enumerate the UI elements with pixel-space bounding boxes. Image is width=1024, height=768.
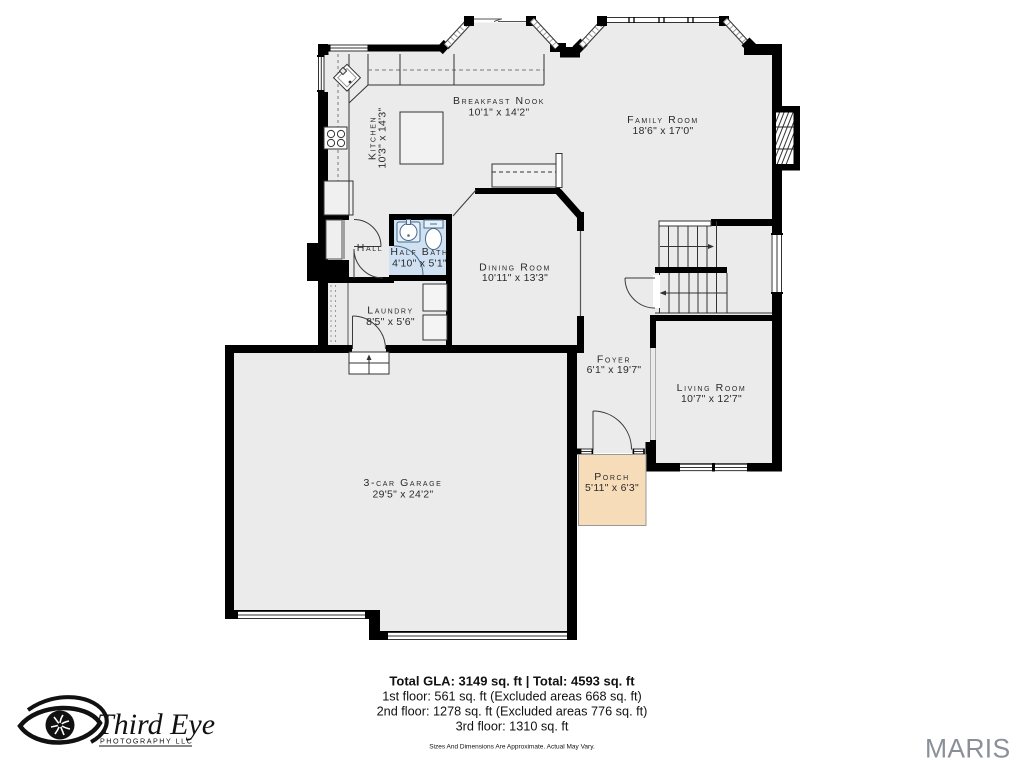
svg-text:3-car Garage: 3-car Garage <box>364 477 443 489</box>
svg-text:Porch: Porch <box>594 471 630 483</box>
svg-text:MARIS: MARIS <box>925 734 1010 764</box>
svg-text:18'6" x 17'0": 18'6" x 17'0" <box>633 126 694 137</box>
svg-text:Breakfast Nook: Breakfast Nook <box>453 95 545 107</box>
svg-text:Foyer: Foyer <box>597 354 631 366</box>
svg-text:Family Room: Family Room <box>627 114 699 126</box>
svg-text:29'5" x 24'2": 29'5" x 24'2" <box>373 490 434 501</box>
svg-text:10'11" x 13'3": 10'11" x 13'3" <box>482 273 548 284</box>
svg-text:10'1" x 14'2": 10'1" x 14'2" <box>469 108 530 119</box>
svg-text:1st floor: 561 sq. ft (Exclude: 1st floor: 561 sq. ft (Excluded areas 66… <box>382 690 642 704</box>
svg-text:3rd floor: 1310 sq. ft: 3rd floor: 1310 sq. ft <box>456 720 569 734</box>
svg-text:Hall: Hall <box>357 242 383 254</box>
svg-text:Living Room: Living Room <box>677 382 747 394</box>
svg-text:6'1" x 19'7": 6'1" x 19'7" <box>587 365 642 376</box>
svg-text:Half Bath: Half Bath <box>390 246 448 258</box>
svg-text:Dining Room: Dining Room <box>479 262 551 274</box>
svg-text:5'11" x 6'3": 5'11" x 6'3" <box>585 483 639 494</box>
svg-text:Laundry: Laundry <box>367 305 413 317</box>
svg-text:8'5" x 5'6": 8'5" x 5'6" <box>366 317 415 328</box>
svg-text:10'7" x 12'7": 10'7" x 12'7" <box>681 394 742 405</box>
svg-text:4'10" x 5'1": 4'10" x 5'1" <box>392 259 447 270</box>
svg-text:Total GLA: 3149 sq. ft | Total: Total GLA: 3149 sq. ft | Total: 4593 sq.… <box>389 674 635 689</box>
svg-text:PHOTOGRAPHY LLC: PHOTOGRAPHY LLC <box>100 737 193 746</box>
svg-text:2nd floor: 1278 sq. ft (Exclud: 2nd floor: 1278 sq. ft (Excluded areas 7… <box>377 705 648 719</box>
svg-text:Sizes And Dimensions Are Appro: Sizes And Dimensions Are Approximate. Ac… <box>429 744 595 751</box>
svg-text:10'3" x 14'3": 10'3" x 14'3" <box>378 108 389 169</box>
